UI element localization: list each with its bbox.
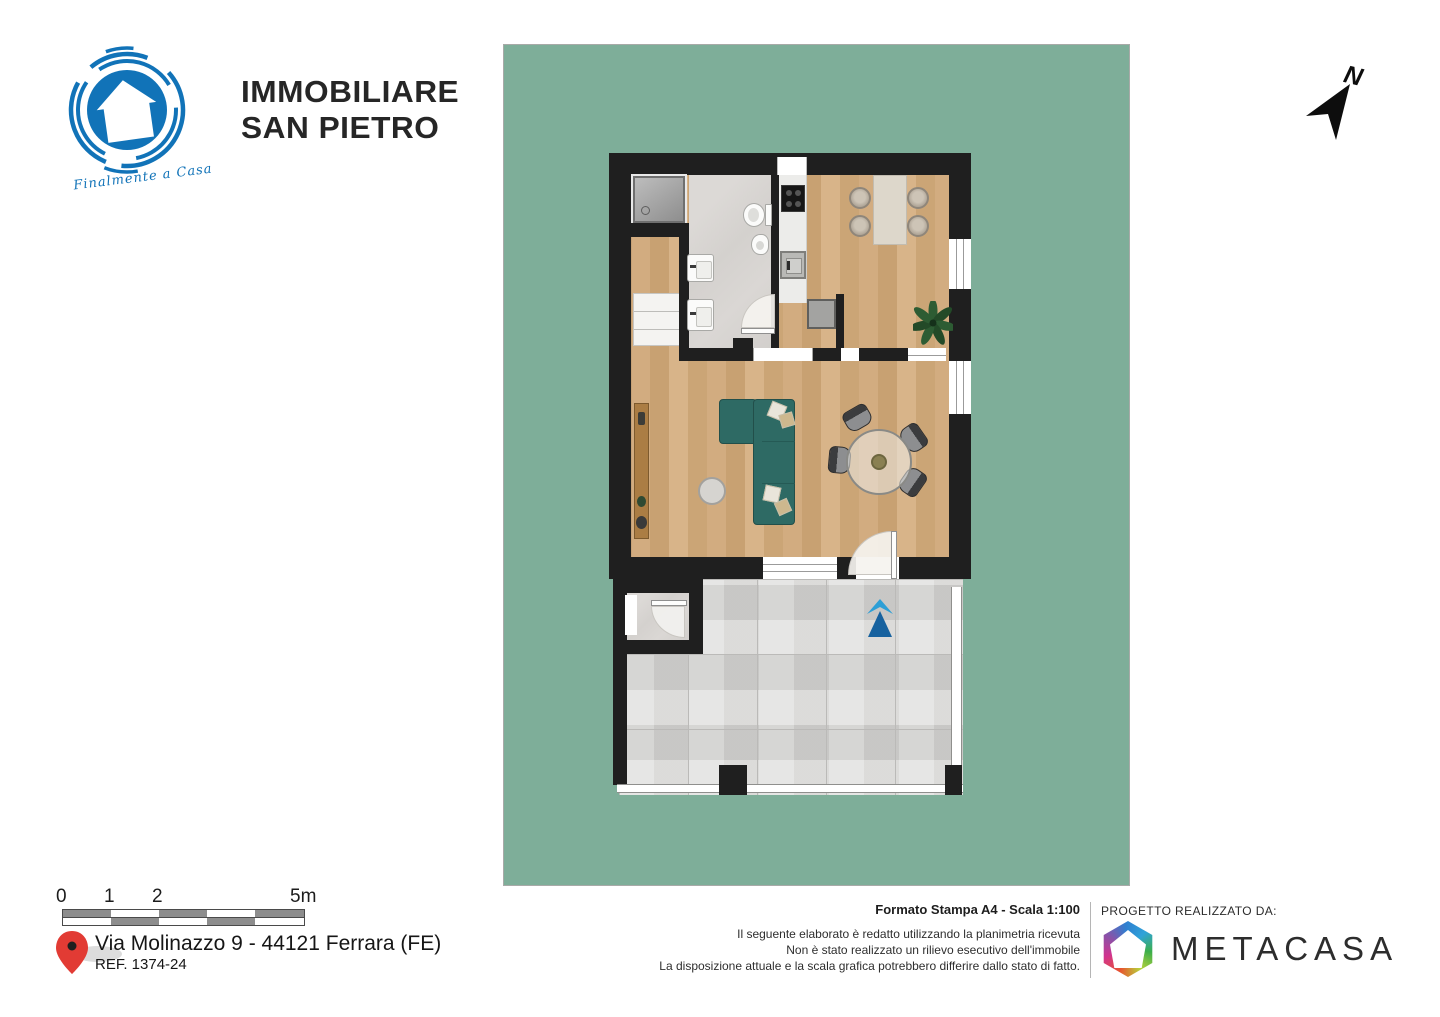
- dining-chair: [849, 215, 871, 237]
- round-table: [846, 429, 912, 495]
- coffee-table: [698, 477, 726, 505]
- property-reference: REF. 1374-24: [95, 956, 187, 973]
- window: [949, 239, 971, 289]
- bidet: [751, 234, 769, 255]
- toilet: [743, 203, 765, 227]
- toilet-bowl: [748, 208, 759, 222]
- metacasa-icon: [1101, 921, 1155, 977]
- wall-segment: [813, 348, 841, 361]
- dining-chair: [907, 187, 929, 209]
- bathroom-door-leaf: [741, 328, 775, 334]
- scale-bar-row-bottom: [62, 917, 305, 926]
- window: [949, 361, 971, 414]
- decor-item: [638, 412, 645, 425]
- disclaimer-line: Il seguente elaborato è redatto utilizza…: [520, 926, 1080, 942]
- agency-logo: IMMOBILIARE SAN PIETRO Finalmente a Casa: [55, 42, 395, 192]
- washbasin: [687, 254, 714, 282]
- shower-drain-icon: [641, 206, 650, 215]
- agency-name-line2: SAN PIETRO: [241, 110, 459, 146]
- storage-room-walls: [613, 579, 703, 654]
- credits-logo: METACASA: [1101, 920, 1398, 978]
- sofa-chaise: [719, 399, 757, 444]
- scale-label-5m: 5m: [290, 886, 316, 908]
- footer-divider: [1090, 902, 1091, 978]
- dining-chair: [907, 215, 929, 237]
- credits-company: METACASA: [1171, 930, 1398, 968]
- sideboard: [634, 403, 649, 539]
- print-format: Formato Stampa A4 - Scala 1:100: [520, 902, 1080, 917]
- map-pin-icon: [52, 928, 92, 976]
- shower: [633, 176, 685, 223]
- storage-door-leaf: [651, 600, 687, 606]
- wall-segment: [679, 348, 733, 361]
- print-info: Formato Stampa A4 - Scala 1:100 Il segue…: [520, 902, 1080, 974]
- disclaimer-line: La disposizione attuale e la scala grafi…: [520, 958, 1080, 974]
- top-wall-window: [777, 157, 807, 175]
- storage-opening: [625, 595, 637, 635]
- pillar: [719, 765, 747, 795]
- round-table-base: [871, 454, 887, 470]
- scale-bar: 0 1 2 5m: [62, 886, 304, 926]
- window: [763, 557, 837, 579]
- terrace-rail: [951, 587, 962, 786]
- plant: [913, 301, 953, 345]
- plan-canvas: [503, 44, 1130, 886]
- scale-label-0: 0: [56, 886, 67, 908]
- decor-plant: [637, 496, 646, 507]
- kitchen-sink: [780, 251, 806, 279]
- disclaimer-line: Non è stato realizzato un rilievo esecut…: [520, 942, 1080, 958]
- decor-plant: [636, 516, 647, 529]
- stove: [781, 185, 805, 212]
- floorplan-sheet: { "branding": { "agency": { "line1": "IM…: [0, 0, 1440, 1017]
- wall-segment: [836, 294, 844, 352]
- dining-table: [873, 175, 907, 245]
- agency-name: IMMOBILIARE SAN PIETRO: [241, 74, 459, 146]
- property-address: Via Molinazzo 9 - 44121 Ferrara (FE): [95, 932, 441, 956]
- pillar: [945, 765, 962, 795]
- scale-label-1: 1: [104, 886, 115, 908]
- north-indicator: N: [1300, 60, 1380, 150]
- agency-name-line1: IMMOBILIARE: [241, 74, 459, 110]
- bidet-bowl: [756, 241, 764, 250]
- washbasin: [687, 299, 714, 331]
- toilet-tank: [765, 204, 772, 226]
- faucet-icon: [787, 261, 790, 270]
- dining-chair: [849, 187, 871, 209]
- wall-segment: [733, 338, 753, 361]
- entrance-door-leaf: [891, 531, 897, 579]
- closet-shelves: [633, 293, 685, 346]
- terrace-rail: [617, 784, 963, 793]
- entry-arrow-icon: [866, 599, 894, 641]
- wall-segment: [859, 348, 908, 361]
- credits-label: PROGETTO REALIZZATO DA:: [1101, 904, 1277, 918]
- scale-label-2: 2: [152, 886, 163, 908]
- cabinet: [807, 299, 836, 329]
- interior-window: [908, 348, 946, 361]
- passage-opening: [753, 348, 813, 361]
- passage-opening: [841, 348, 859, 361]
